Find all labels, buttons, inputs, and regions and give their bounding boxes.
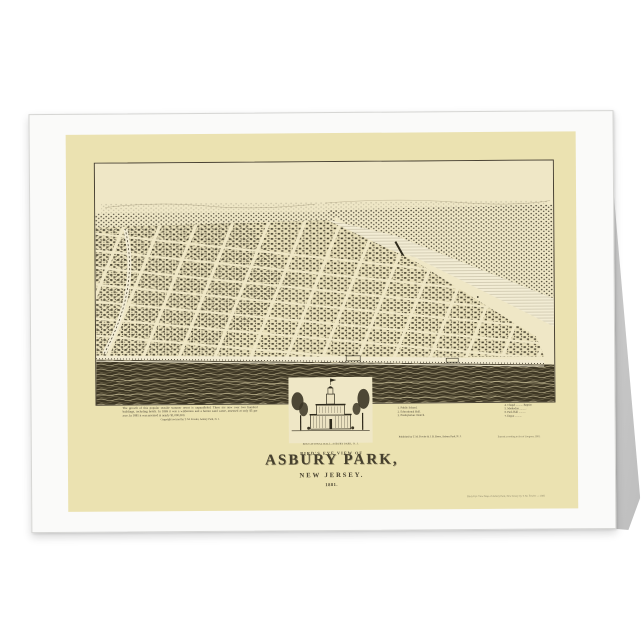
- description-block: The growth of this popular seaside summe…: [123, 406, 258, 447]
- description-text: The growth of this popular seaside summe…: [123, 406, 258, 418]
- congress-entry-line: Entered according to Act of Congress, 18…: [498, 435, 553, 440]
- map-subtitle: NEW JERSEY.: [300, 471, 365, 480]
- legend-item: 3. Presbyterian Church.: [398, 414, 470, 418]
- title-kicker: BIRD'S EYE VIEW OF: [300, 451, 363, 456]
- beach-pavilion: [346, 356, 360, 361]
- educational-hall-vignette: EDUCATIONAL HALL, ASBURY PARK, N. J.: [288, 377, 373, 450]
- map-title-block: BIRD'S EYE VIEW OF ASBURY PARK, NEW JERS…: [262, 445, 402, 484]
- fine-print-line: Birds Eye View Map of Asbury Park, New J…: [463, 495, 549, 502]
- card-design-area: EDUCATIONAL HALL, ASBURY PARK, N. J. The…: [66, 131, 579, 512]
- beach-pavilion: [446, 358, 458, 362]
- panoramic-map-print: [94, 159, 556, 405]
- map-year: 1881.: [326, 482, 339, 487]
- map-illustration: [95, 160, 555, 404]
- legend-right-column: 4. Chapel .......... Baptist 5. Methodis…: [505, 404, 551, 433]
- vignette-illustration: [288, 377, 372, 444]
- vignette-caption: EDUCATIONAL HALL, ASBURY PARK, N. J.: [289, 443, 373, 449]
- copyright-line: Copyright secured by T. M. Fowler, Asbur…: [123, 418, 258, 423]
- publisher-line: Published by T. M. Fowler & J. B. Beers,…: [399, 435, 479, 442]
- greeting-card[interactable]: EDUCATIONAL HALL, ASBURY PARK, N. J. The…: [28, 108, 644, 552]
- card-front-panel: EDUCATIONAL HALL, ASBURY PARK, N. J. The…: [28, 110, 616, 533]
- page-background: EDUCATIONAL HALL, ASBURY PARK, N. J. The…: [0, 0, 644, 644]
- legend-left-column: 1. Public School. 2. Educational Hall. 3…: [398, 406, 470, 429]
- legend-item: 7. Depot ..........: [505, 414, 551, 418]
